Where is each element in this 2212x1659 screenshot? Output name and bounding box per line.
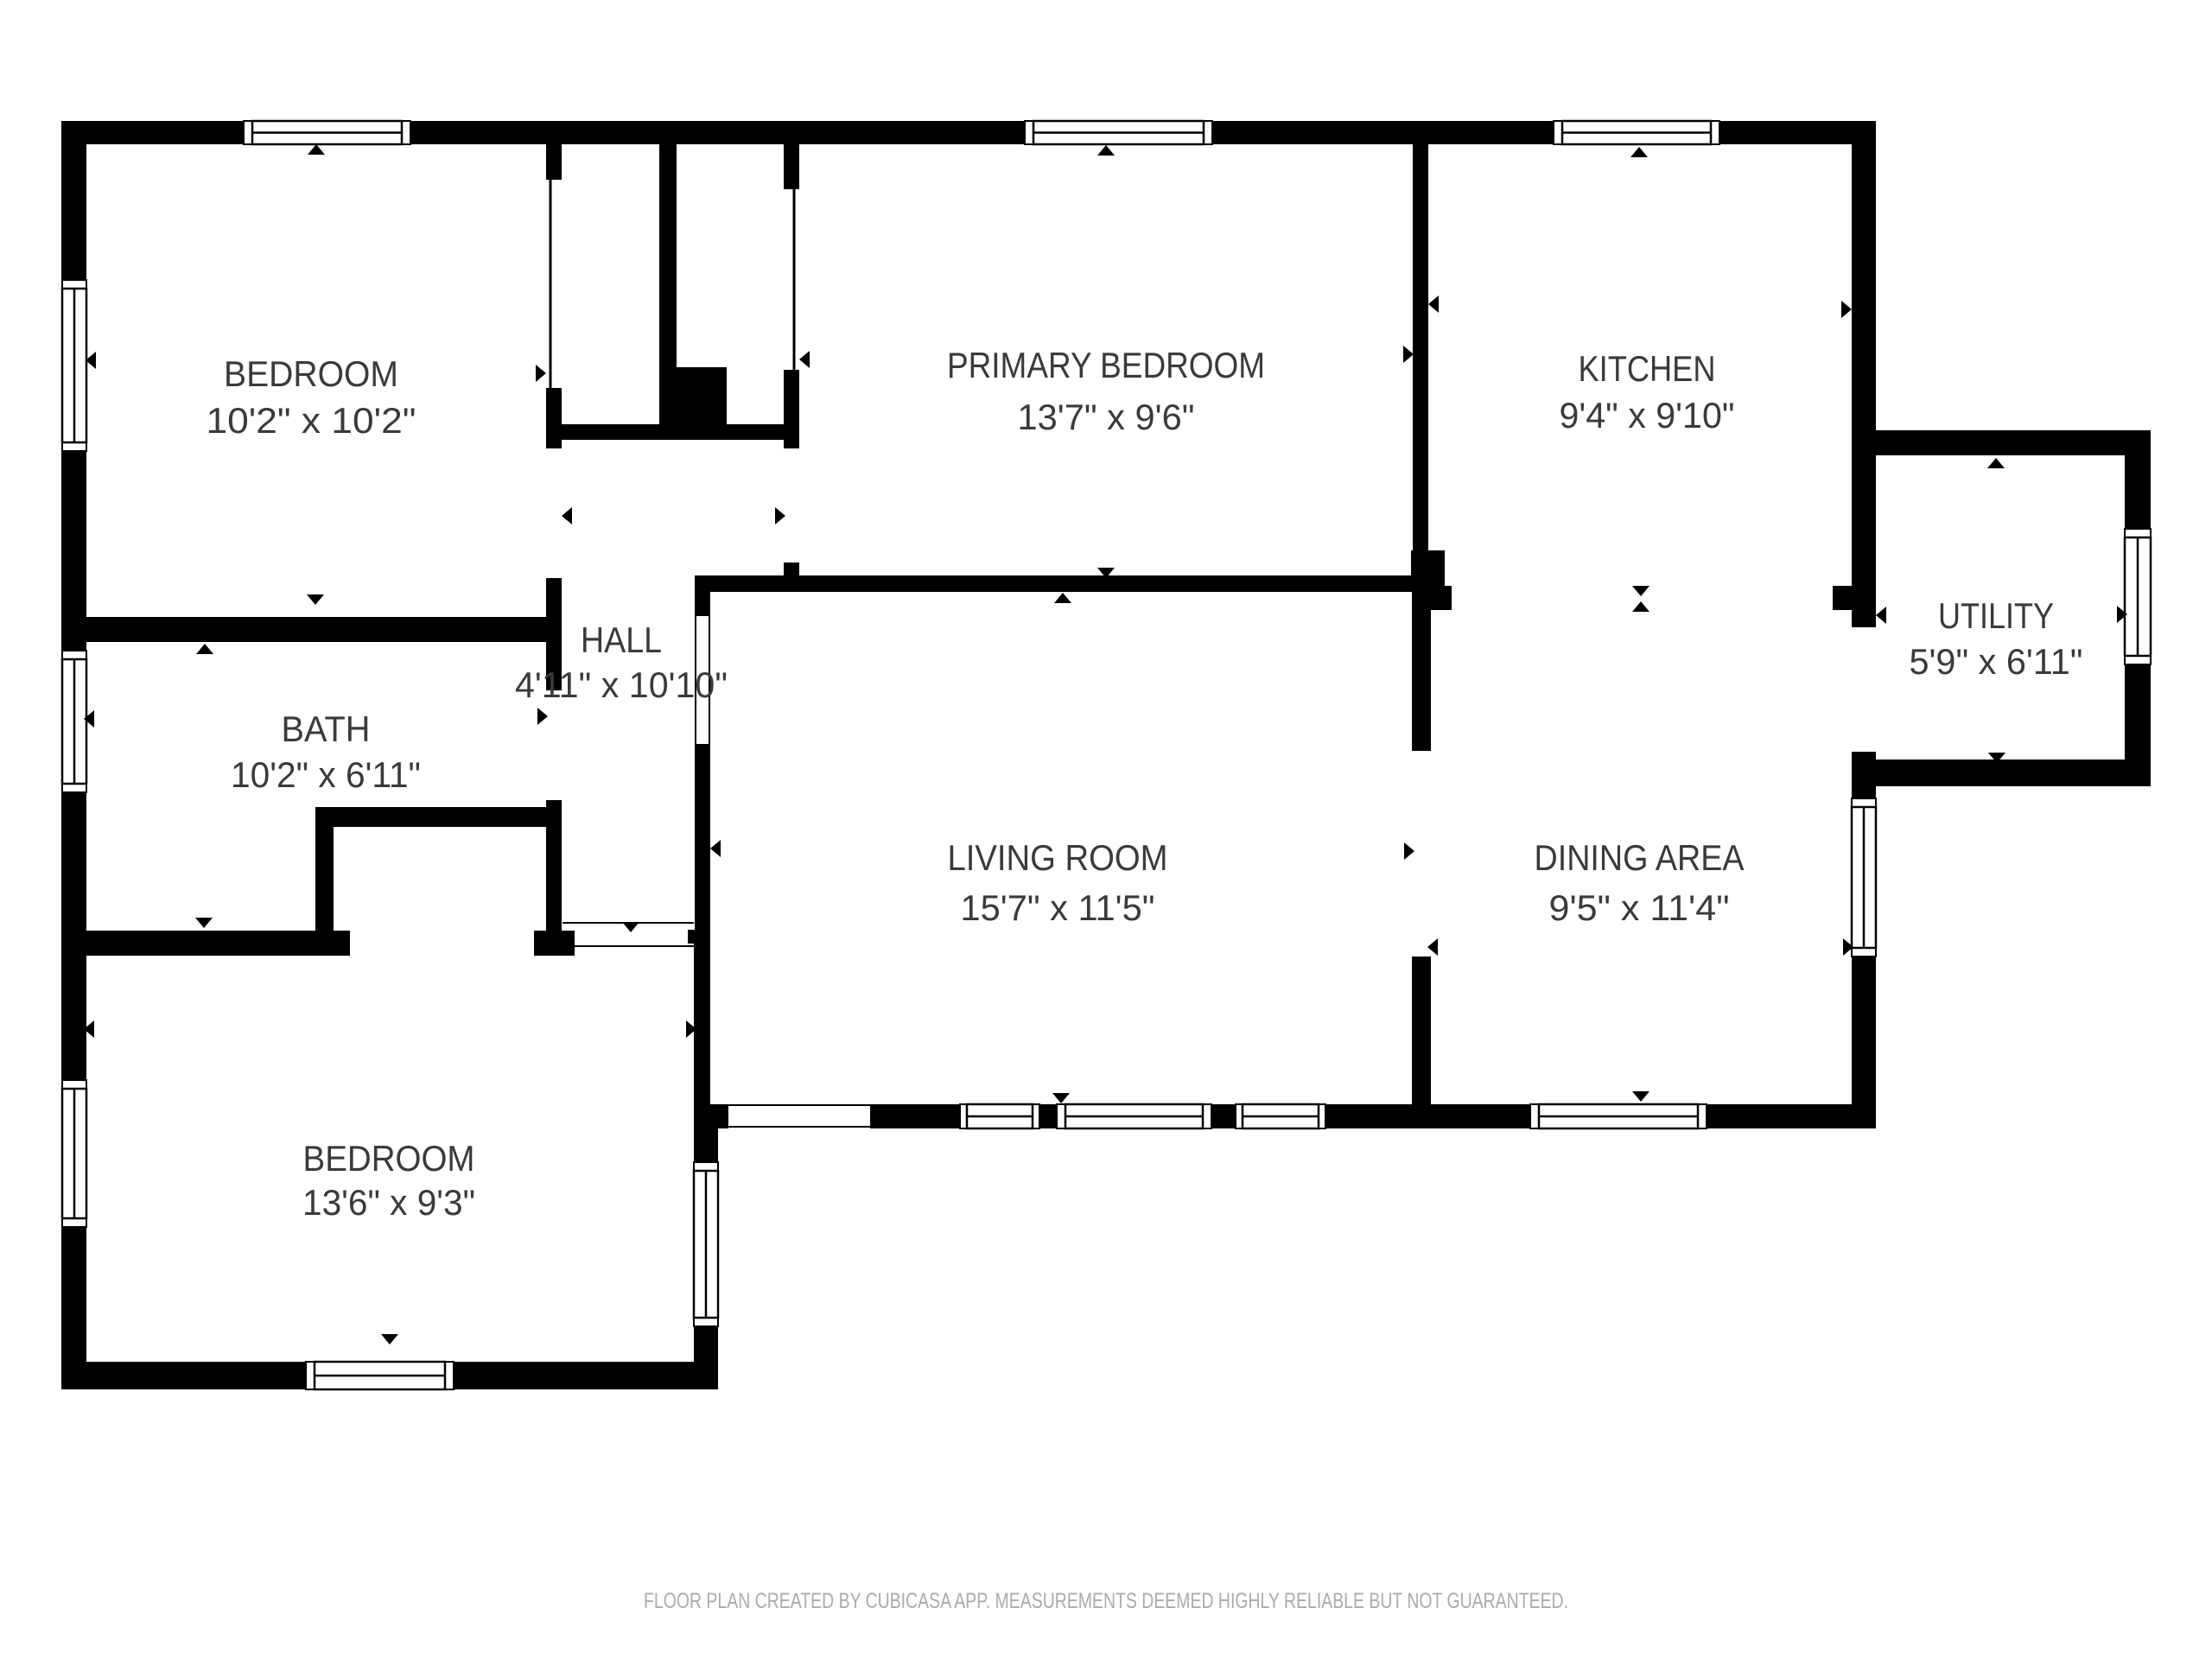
- svg-text:KITCHEN: KITCHEN: [1579, 348, 1716, 389]
- svg-text:BEDROOM: BEDROOM: [303, 1138, 475, 1179]
- svg-text:13'7" x 9'6": 13'7" x 9'6": [1018, 397, 1195, 437]
- svg-text:HALL: HALL: [581, 620, 662, 660]
- svg-text:10'2" x 10'2": 10'2" x 10'2": [207, 400, 416, 441]
- svg-text:PRIMARY BEDROOM: PRIMARY BEDROOM: [947, 345, 1265, 385]
- svg-text:FLOOR PLAN CREATED BY CUBICASA: FLOOR PLAN CREATED BY CUBICASA APP. MEAS…: [644, 1589, 1568, 1613]
- svg-text:9'5" x 11'4": 9'5" x 11'4": [1549, 887, 1730, 928]
- svg-text:UTILITY: UTILITY: [1938, 595, 2054, 636]
- svg-text:4'11" x 10'10": 4'11" x 10'10": [515, 664, 728, 705]
- svg-text:BEDROOM: BEDROOM: [224, 353, 398, 394]
- svg-text:10'2" x 6'11": 10'2" x 6'11": [231, 754, 421, 795]
- svg-text:LIVING ROOM: LIVING ROOM: [948, 837, 1168, 878]
- svg-text:13'6" x 9'3": 13'6" x 9'3": [302, 1182, 475, 1223]
- svg-text:9'4" x 9'10": 9'4" x 9'10": [1560, 395, 1735, 435]
- svg-text:DINING AREA: DINING AREA: [1535, 837, 1745, 878]
- svg-text:15'7" x 11'5": 15'7" x 11'5": [961, 887, 1155, 928]
- svg-text:5'9" x 6'11": 5'9" x 6'11": [1910, 641, 2083, 682]
- svg-text:BATH: BATH: [282, 709, 371, 749]
